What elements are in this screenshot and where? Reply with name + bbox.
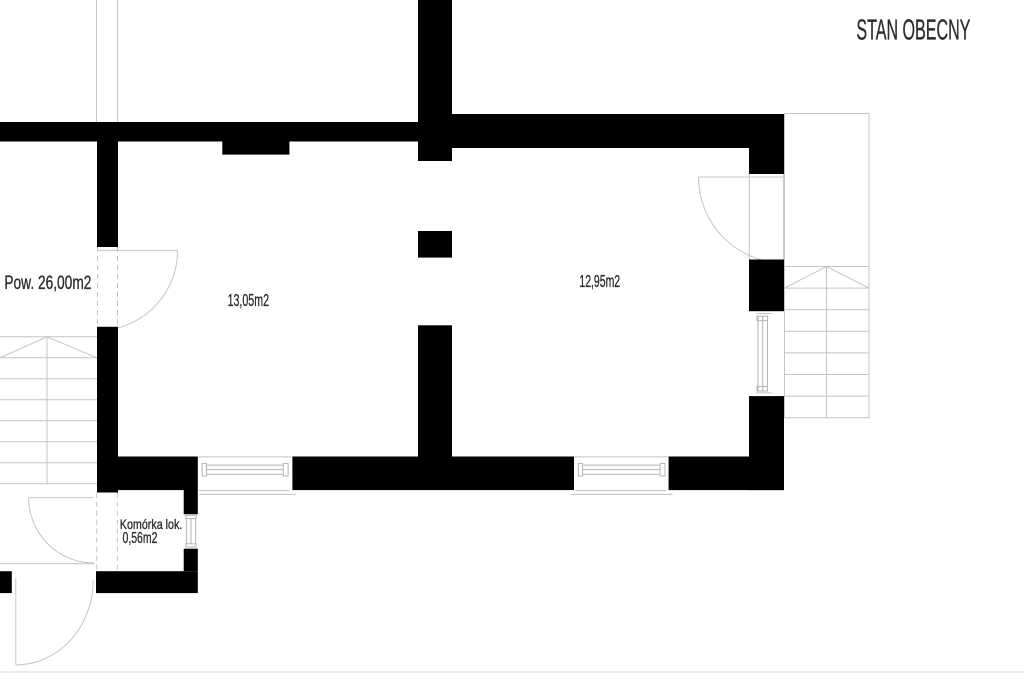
svg-text:STAN OBECNY: STAN OBECNY — [856, 14, 970, 46]
svg-text:Pow. 26,00m2: Pow. 26,00m2 — [4, 273, 91, 294]
svg-text:13,05m2: 13,05m2 — [228, 290, 269, 310]
svg-text:0,56m2: 0,56m2 — [123, 530, 158, 547]
svg-text:12,95m2: 12,95m2 — [579, 271, 620, 291]
